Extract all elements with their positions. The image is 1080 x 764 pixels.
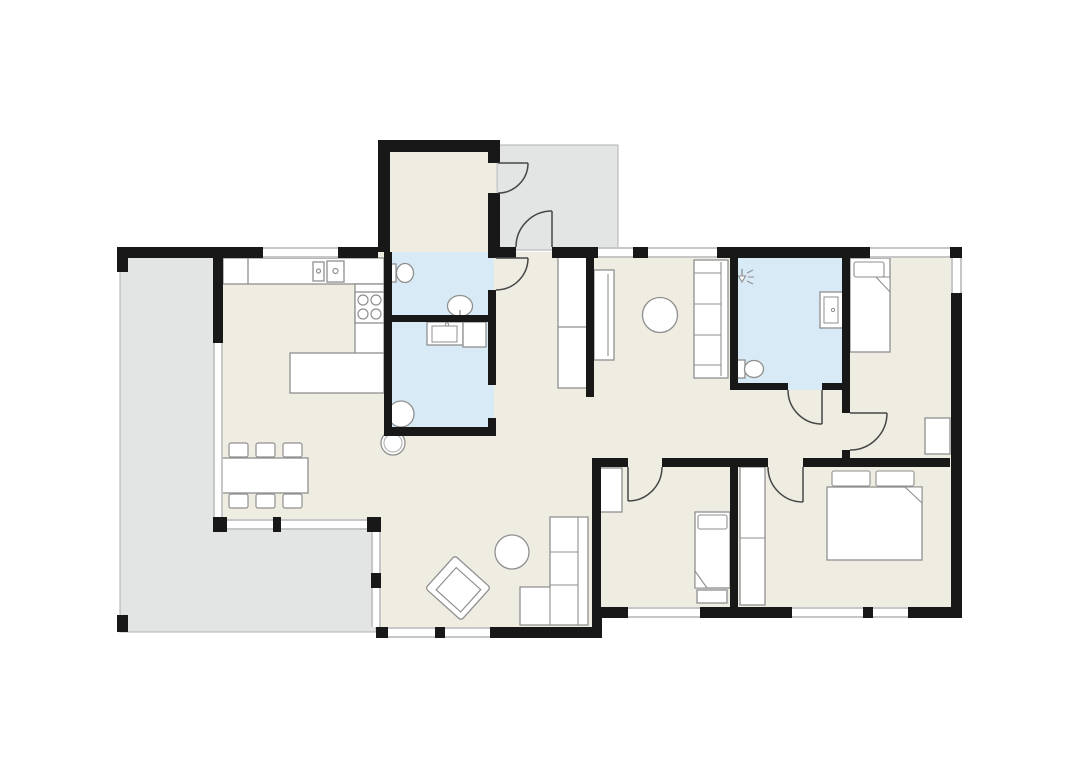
window [388,627,435,638]
master-wardrobe [740,467,765,605]
wall [338,247,378,258]
dining-chair [229,494,248,508]
window [371,588,381,627]
wall [488,322,496,385]
wall [863,607,873,618]
wall-post [371,573,381,588]
bathroom1-floor [386,252,494,320]
wall-post [213,517,227,532]
coffee-table [495,535,529,569]
hall-sofa [694,260,728,378]
wall [488,290,496,322]
hall-round-table [643,298,678,333]
double-bed [827,487,922,560]
washer-unit [463,322,486,347]
wall [730,465,738,618]
wall [662,458,768,467]
bed-pillow [698,515,727,529]
wall [842,450,850,467]
wall [490,627,602,638]
bed-pillow [876,471,914,486]
dining-chair [256,443,275,457]
wall [213,247,223,343]
wall [730,252,738,390]
wall [592,458,601,618]
wall [950,247,962,258]
wall [633,247,648,258]
wall [488,140,500,163]
vanity-sink [432,326,457,342]
wall [700,607,792,618]
wall [384,252,392,430]
entry-room-floor [384,146,496,252]
wall [117,247,263,258]
window [213,343,223,517]
kitchen-appliance [327,261,344,282]
closet [598,468,622,512]
window [371,532,381,573]
hall-wardrobe [594,270,614,360]
wall [378,140,390,252]
kitchen-appliance [313,262,324,281]
dining-chair [229,443,248,457]
bed-footboard [697,590,727,603]
bed-pillow [832,471,870,486]
wall [494,247,516,258]
wall-post [273,517,281,532]
kitchen-island [290,353,384,393]
window [598,247,633,258]
dining-chair [283,494,302,508]
wall [488,252,496,258]
window [951,258,962,293]
wall [384,315,494,322]
window [870,247,950,258]
wall [378,140,500,152]
toilet-bowl [745,361,764,378]
window [281,519,367,530]
bed-pillow [854,262,884,277]
wall-post [117,615,128,632]
dining-chair [256,494,275,508]
toilet-tank [737,360,745,378]
living-cabinet [558,257,588,388]
wall [803,458,950,467]
window [648,247,717,258]
wall-post [367,517,381,532]
wall [908,607,962,618]
floor-plan-page [0,0,1080,764]
window [792,607,863,618]
window [445,627,490,638]
nightstand [925,418,950,454]
wall-post [117,258,128,272]
wall [842,252,850,413]
toilet-bowl [397,264,414,283]
wall [384,427,496,436]
wall [488,193,500,252]
dining-chair [283,443,302,457]
wall [951,293,962,618]
kitchen-counter [223,258,384,284]
wall [376,627,388,638]
wall [730,383,788,390]
porch-area [497,145,618,250]
wall [586,252,594,397]
window [263,247,338,258]
wall [435,627,445,638]
dining-table [222,458,308,493]
floor-plan-svg [0,0,1080,764]
window [873,607,908,618]
window [628,607,700,618]
window [227,519,273,530]
